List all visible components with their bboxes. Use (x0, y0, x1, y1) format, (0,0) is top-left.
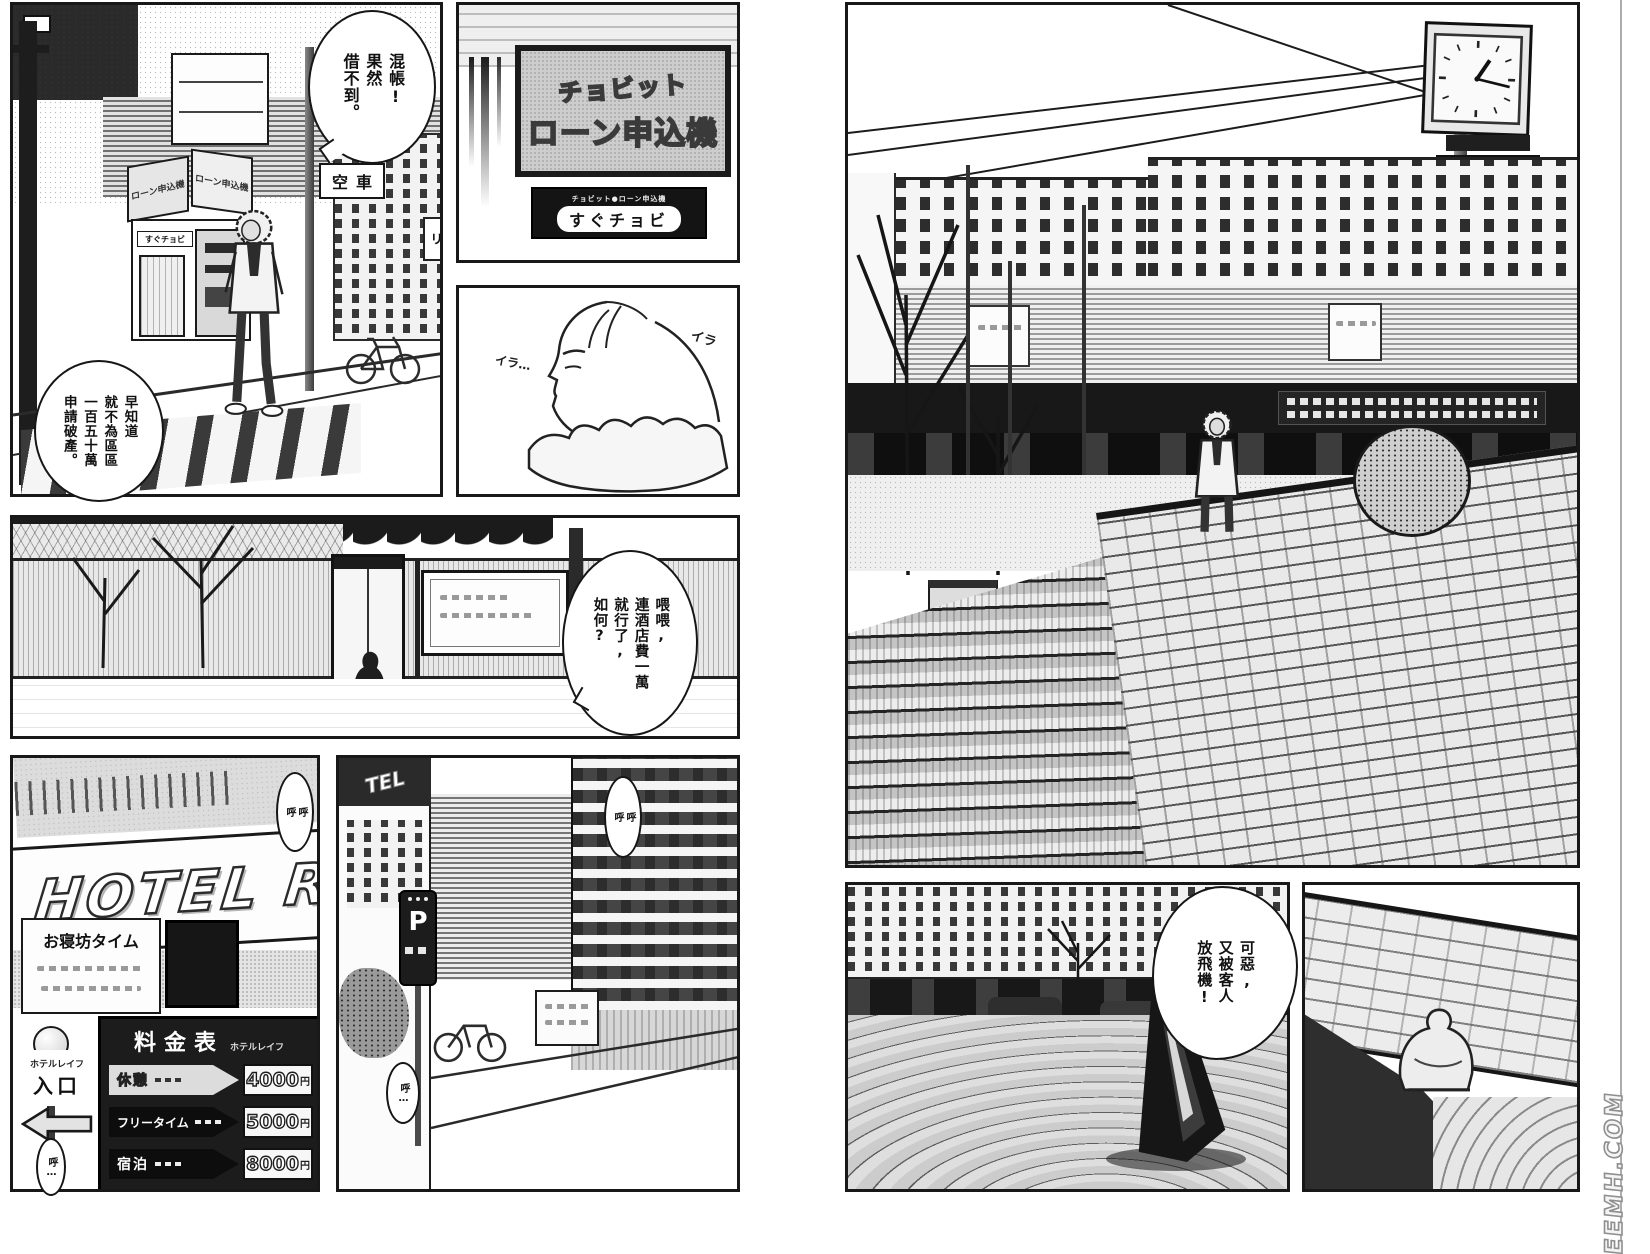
drip-streak (497, 57, 501, 147)
booth-brand-label: すぐチョビ (145, 234, 185, 245)
snore-bubble: 呼 呼 (604, 776, 642, 858)
katakana-sign: リ (423, 217, 443, 261)
speech-text: 喂喂, 連酒店費一萬 就行了, 如何? (589, 597, 671, 690)
booth-sign-left: ローン申込機 (127, 156, 189, 223)
nap-time-sign: お寝坊タイム (21, 918, 161, 1014)
parking-sign-label: P (408, 907, 427, 937)
price-row: フリータイム 5000 円 (109, 1105, 313, 1139)
price-row: 休憩 4000 円 (109, 1063, 313, 1097)
entrance-name-label: ホテルレイフ (30, 1057, 84, 1070)
booth-roof (334, 557, 402, 569)
price-value: 8000 (246, 1153, 299, 1175)
paved-arcs (1433, 1097, 1580, 1192)
hotel-doorway (165, 920, 239, 1008)
katakana-sign-label: リ (425, 232, 443, 246)
poster-right (1328, 303, 1382, 361)
speech-bubble-damn: 混帳! 果然 借不到。 (308, 10, 436, 164)
panel-wall-corner (1302, 882, 1580, 1192)
price-unit: 円 (300, 1115, 310, 1130)
mid-building (431, 794, 571, 980)
price-value: 4000 (246, 1069, 299, 1091)
price-board: 料金表 ホテルレイフ 休憩 4000 円 フリータイム 5000 円 (98, 1016, 320, 1192)
price-arrow: 休憩 (109, 1065, 239, 1095)
panel-profile: イラ イラ… (456, 285, 740, 497)
taxi-sign: 空車 (319, 163, 385, 199)
clock-base-band (1446, 135, 1530, 151)
hotel-eaves (13, 755, 320, 838)
clock-icon (1430, 30, 1523, 127)
price-board-header: 料金表 ホテルレイフ (111, 1025, 307, 1057)
balcony-rails (14, 770, 235, 815)
booth-sign-left-label: ローン申込機 (131, 176, 185, 202)
bulletin-board (421, 570, 569, 656)
snore-bubble: 呼… (386, 1062, 420, 1124)
price-arrow: 宿泊 (109, 1149, 239, 1179)
parking-sign-pole (415, 986, 421, 1146)
price-value: 5000 (246, 1111, 299, 1133)
woman-profile (459, 288, 740, 497)
scan-edge-line (1620, 0, 1622, 1254)
person-parka-standing (1178, 409, 1256, 539)
entrance-label: 入口 (33, 1070, 81, 1099)
snore-text: 呼 呼 (611, 812, 635, 822)
price-value-box: 4000 円 (243, 1064, 313, 1096)
booth-brand-sign: すぐチョビ (137, 231, 193, 247)
price-label: 宿泊 (117, 1154, 149, 1174)
snore-text: 呼… (45, 1157, 57, 1178)
person-parka-walking (213, 203, 295, 421)
panel-hotel: HOTEL R お寝坊タイム ホテルレイフ 入口 料金表 ホテルレイフ (10, 755, 320, 1192)
manga-spread: リ 空車 ローン申込機 ローン申込機 すぐチョビ (0, 0, 1650, 1254)
price-board-subtitle: ホテルレイフ (230, 1040, 284, 1053)
booth-sign-right-label: ローン申込機 (195, 170, 249, 193)
entrance-arrow-icon (21, 1106, 93, 1142)
price-row: 宿泊 8000 円 (109, 1147, 313, 1181)
panel-plaza (845, 2, 1580, 868)
price-unit: 円 (300, 1073, 310, 1088)
price-value-box: 5000 円 (243, 1106, 313, 1138)
price-arrow: フリータイム (109, 1107, 239, 1137)
pole-crossarm (13, 45, 49, 53)
booth-door (139, 255, 185, 337)
speech-text: 可惡, 又被客人 放飛機! (1193, 940, 1257, 1007)
loan-billboard: チョビット ローン申込機 (515, 45, 731, 177)
right-building (571, 758, 740, 1010)
clock-box (1421, 21, 1533, 137)
drip-streak (481, 57, 489, 207)
snore-bubble: 呼 呼 (276, 772, 314, 852)
price-unit: 円 (300, 1157, 310, 1172)
entrance-sign: ホテルレイフ 入口 (13, 1050, 101, 1106)
snore-bubble: 呼… (36, 1138, 66, 1196)
ad-banner (1278, 391, 1546, 425)
speech-text: 早知道 就不為區區 一百五十萬 申請破產。 (59, 395, 140, 468)
apartment-block-b (1148, 157, 1580, 285)
loan-strip-small-label: チョビット●ローン申込機 (572, 194, 667, 204)
nap-time-label: お寝坊タイム (23, 928, 159, 952)
watermark-text: SEEMH.COM (1600, 1090, 1628, 1254)
snore-text: 呼 呼 (283, 807, 307, 817)
taxi-sign-label: 空車 (324, 169, 380, 193)
loan-strip-sign: チョビット●ローン申込機 すぐチョビ (531, 187, 707, 239)
hotel-corner-band: TEL (339, 758, 431, 806)
price-label: フリータイム (117, 1114, 189, 1131)
snore-text: 呼… (397, 1083, 409, 1104)
watermark: SEEMH.COM (1586, 1114, 1642, 1252)
speech-text: 混帳! 果然 借不到。 (338, 53, 406, 121)
standing-signboard (535, 990, 599, 1046)
price-value-box: 8000 円 (243, 1148, 313, 1180)
parking-sign: P (399, 890, 437, 986)
hanging-signbox (171, 53, 269, 145)
loan-billboard-main: ローン申込機 (528, 108, 718, 153)
price-board-title: 料金表 (134, 1025, 224, 1057)
stone-sphere (1353, 425, 1471, 537)
hotel-corner-label: TEL (363, 766, 408, 799)
price-label: 休憩 (117, 1070, 149, 1090)
slumped-figure (1369, 979, 1493, 1097)
loan-strip-brand-label: すぐチョビ (557, 206, 681, 232)
speech-bubble-bankruptcy: 早知道 就不為區區 一百五十萬 申請破產。 (34, 360, 164, 502)
bicycle (423, 1000, 519, 1066)
panel-loan-sign: チョビット ローン申込機 チョビット●ローン申込機 すぐチョビ (456, 2, 740, 263)
panel-alley: TEL P (336, 755, 740, 1192)
loan-billboard-title: チョビット (557, 65, 689, 109)
drip-streak (469, 57, 474, 167)
